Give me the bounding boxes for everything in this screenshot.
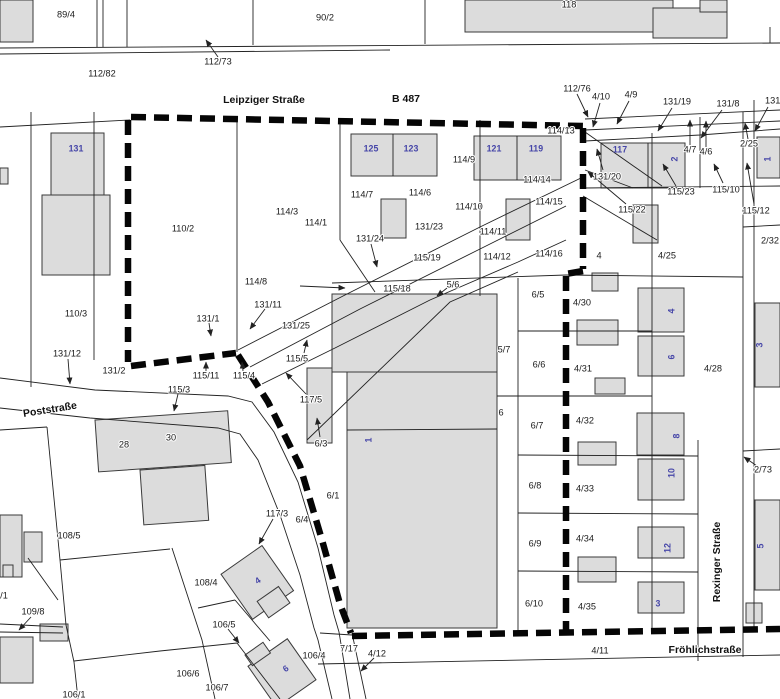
parcel-label-4-32: 4/32 bbox=[576, 415, 594, 425]
parcel-label-28: 28 bbox=[119, 439, 129, 449]
parcel-label-115-11: 115/11 bbox=[193, 370, 220, 380]
house-number-3: 3 bbox=[754, 342, 764, 347]
cadastral-map: 89/490/2118112/73112/82Leipziger StraßeB… bbox=[0, 0, 780, 699]
parcel-label-4-33: 4/33 bbox=[576, 483, 594, 493]
parcel-label-89-4: 89/4 bbox=[57, 9, 75, 19]
building bbox=[578, 442, 616, 465]
building bbox=[700, 0, 727, 12]
building bbox=[140, 465, 209, 524]
parcel-label-6-7: 6/7 bbox=[531, 420, 544, 430]
parcel-label-114-15: 114/15 bbox=[535, 196, 562, 206]
map-canvas: 89/490/2118112/73112/82Leipziger StraßeB… bbox=[0, 0, 780, 699]
parcel-label-6-10: 6/10 bbox=[525, 598, 543, 608]
house-number-125: 125 bbox=[364, 143, 379, 153]
parcel-label-115-3: 115/3 bbox=[168, 384, 190, 394]
building bbox=[578, 557, 616, 582]
house-number-2: 2 bbox=[669, 156, 679, 161]
parcel-label-115-5: 115/5 bbox=[286, 353, 308, 363]
parcel-label-112-73: 112/73 bbox=[204, 56, 231, 66]
parcel-label-30: 30 bbox=[166, 432, 176, 442]
parcel-label-114-7: 114/7 bbox=[351, 189, 373, 199]
parcel-label-110-2: 110/2 bbox=[172, 223, 194, 233]
parcel-label-4-28: 4/28 bbox=[704, 363, 722, 373]
parcel-label-6-6: 6/6 bbox=[533, 359, 546, 369]
parcel-label-2-32: 2/32 bbox=[761, 235, 779, 245]
parcel-label-114-16: 114/16 bbox=[535, 248, 562, 258]
house-number-117: 117 bbox=[613, 144, 627, 154]
parcel-label-4-7: 4/7 bbox=[684, 144, 697, 154]
parcel-label-118: 118 bbox=[562, 0, 577, 9]
building bbox=[0, 0, 33, 42]
house-number-10: 10 bbox=[666, 468, 676, 478]
parcel-label-106-4: 106/4 bbox=[303, 650, 326, 660]
parcel-label-131-19: 131/19 bbox=[663, 96, 691, 106]
building bbox=[332, 294, 497, 372]
parcel-label-4-25: 4/25 bbox=[658, 250, 676, 260]
parcel-label-5-7: 5/7 bbox=[498, 344, 511, 354]
parcel-label-117-3: 117/3 bbox=[266, 508, 288, 518]
parcel-label-6-9: 6/9 bbox=[529, 538, 542, 548]
house-number-8: 8 bbox=[671, 433, 681, 438]
parcel-label-114-1: 114/1 bbox=[305, 217, 327, 227]
parcel-label-131-25: 131/25 bbox=[282, 320, 310, 330]
building bbox=[381, 199, 406, 238]
house-number-4: 4 bbox=[666, 308, 676, 313]
street-name-fröhlichstraße: Fröhlichstraße bbox=[669, 644, 742, 656]
parcel-label-6: 6 bbox=[498, 407, 503, 417]
parcel-label-4: 4 bbox=[596, 250, 601, 260]
parcel-label-108-5: 108/5 bbox=[58, 530, 81, 540]
parcel-label-106-7: 106/7 bbox=[206, 682, 229, 692]
parcel-label-2-73: 2/73 bbox=[754, 464, 772, 474]
parcel-label-115-4: 115/4 bbox=[233, 370, 255, 380]
parcel-label-4-6: 4/6 bbox=[700, 146, 713, 156]
building bbox=[638, 459, 684, 500]
parcel-label-114-13: 114/13 bbox=[547, 125, 574, 135]
parcel-label-117-5: 117/5 bbox=[300, 394, 322, 404]
parcel-label-6-4: 6/4 bbox=[296, 514, 309, 524]
street-name-b-487: B 487 bbox=[392, 93, 420, 105]
parcel-label-114-11: 114/11 bbox=[480, 226, 507, 236]
parcel-label-131-23: 131/23 bbox=[415, 221, 443, 231]
building bbox=[351, 134, 437, 176]
building bbox=[638, 336, 684, 376]
parcel-label-114-6: 114/6 bbox=[409, 187, 431, 197]
building bbox=[0, 168, 8, 184]
house-number-123: 123 bbox=[404, 143, 419, 153]
parcel-label-6-3: 6/3 bbox=[315, 438, 328, 448]
building bbox=[638, 582, 684, 613]
parcel-label-106-5: 106/5 bbox=[213, 619, 236, 629]
parcel-label-4-34: 4/34 bbox=[576, 533, 594, 543]
house-number-6: 6 bbox=[666, 354, 676, 359]
parcel-label-114-10: 114/10 bbox=[455, 201, 482, 211]
parcel-label-4-9: 4/9 bbox=[625, 89, 638, 99]
house-number-12: 12 bbox=[662, 543, 672, 553]
parcel-label-131-20: 131/20 bbox=[593, 171, 621, 181]
building bbox=[42, 195, 110, 275]
house-number-5: 5 bbox=[755, 543, 765, 548]
parcel-label-108-4: 108/4 bbox=[195, 577, 218, 587]
parcel-label-115-22: 115/22 bbox=[618, 204, 645, 214]
street-name-leipziger-straße: Leipziger Straße bbox=[223, 94, 305, 106]
plan-boundary-dashed bbox=[566, 271, 583, 274]
parcel-label-4-11: 4/11 bbox=[591, 645, 608, 655]
parcel-label-4-30: 4/30 bbox=[573, 297, 591, 307]
parcel-label-4-10: 4/10 bbox=[592, 91, 610, 101]
parcel-label-131-11: 131/11 bbox=[254, 299, 281, 309]
parcel-label-114-9: 114/9 bbox=[453, 154, 475, 164]
building bbox=[638, 527, 684, 558]
parcel-label-112-76: 112/76 bbox=[563, 83, 590, 93]
parcel-label-114-12: 114/12 bbox=[483, 251, 510, 261]
parcel-label-6-8: 6/8 bbox=[529, 480, 542, 490]
parcel-label-4-35: 4/35 bbox=[578, 601, 596, 611]
parcel-label-6-5: 6/5 bbox=[532, 289, 545, 299]
parcel-label-106-1: 106/1 bbox=[63, 689, 86, 699]
house-number-121: 121 bbox=[487, 143, 502, 153]
house-number-1: 1 bbox=[363, 437, 373, 442]
parcel-label-114-3: 114/3 bbox=[276, 206, 298, 216]
building bbox=[0, 637, 33, 683]
parcel-label-131-1: 131/1 bbox=[197, 313, 220, 323]
building bbox=[595, 378, 625, 394]
parcel-label-115-19: 115/19 bbox=[413, 252, 440, 262]
parcel-label-4-31: 4/31 bbox=[574, 363, 592, 373]
parcel-label-131-8: 131/8 bbox=[717, 98, 740, 108]
parcel-label-131-2: 131/2 bbox=[103, 365, 126, 375]
parcel-label-112-82: 112/82 bbox=[88, 68, 115, 78]
building bbox=[638, 288, 684, 332]
parcel-label-131-24: 131/24 bbox=[356, 233, 384, 243]
building bbox=[51, 133, 104, 195]
building bbox=[3, 565, 13, 577]
house-number-3: 3 bbox=[656, 598, 661, 608]
parcel-label-114-14: 114/14 bbox=[523, 174, 550, 184]
parcel-label-2-25: 2/25 bbox=[740, 138, 758, 148]
parcel-label-5-6: 5/6 bbox=[447, 279, 460, 289]
parcel-label-106-6: 106/6 bbox=[177, 668, 200, 678]
parcel-label-90-2: 90/2 bbox=[316, 12, 334, 22]
street-name-rexinger-straße: Rexinger Straße bbox=[711, 522, 723, 603]
parcel-label-131: 131/ bbox=[765, 95, 780, 105]
parcel-label-110-3: 110/3 bbox=[65, 308, 87, 318]
parcel-label-115-18: 115/18 bbox=[383, 283, 410, 293]
parcel-label-114-8: 114/8 bbox=[245, 276, 267, 286]
parcel-label-131-12: 131/12 bbox=[53, 348, 81, 358]
parcel-label-1: /1 bbox=[0, 590, 8, 600]
parcel-label-6-1: 6/1 bbox=[327, 490, 340, 500]
parcel-label-115-12: 115/12 bbox=[742, 205, 769, 215]
parcel-label-4-12: 4/12 bbox=[368, 648, 386, 658]
building bbox=[577, 320, 618, 345]
parcel-label-115-10: 115/10 bbox=[712, 184, 739, 194]
house-number-119: 119 bbox=[529, 143, 543, 153]
building bbox=[347, 372, 497, 628]
parcel-label-115-23: 115/23 bbox=[667, 186, 694, 196]
parcel-label-109-8: 109/8 bbox=[22, 606, 45, 616]
parcel-label-7-17: 7/17 bbox=[340, 643, 358, 653]
building bbox=[24, 532, 42, 562]
house-number-1: 1 bbox=[762, 156, 772, 161]
house-number-131: 131 bbox=[69, 143, 84, 153]
